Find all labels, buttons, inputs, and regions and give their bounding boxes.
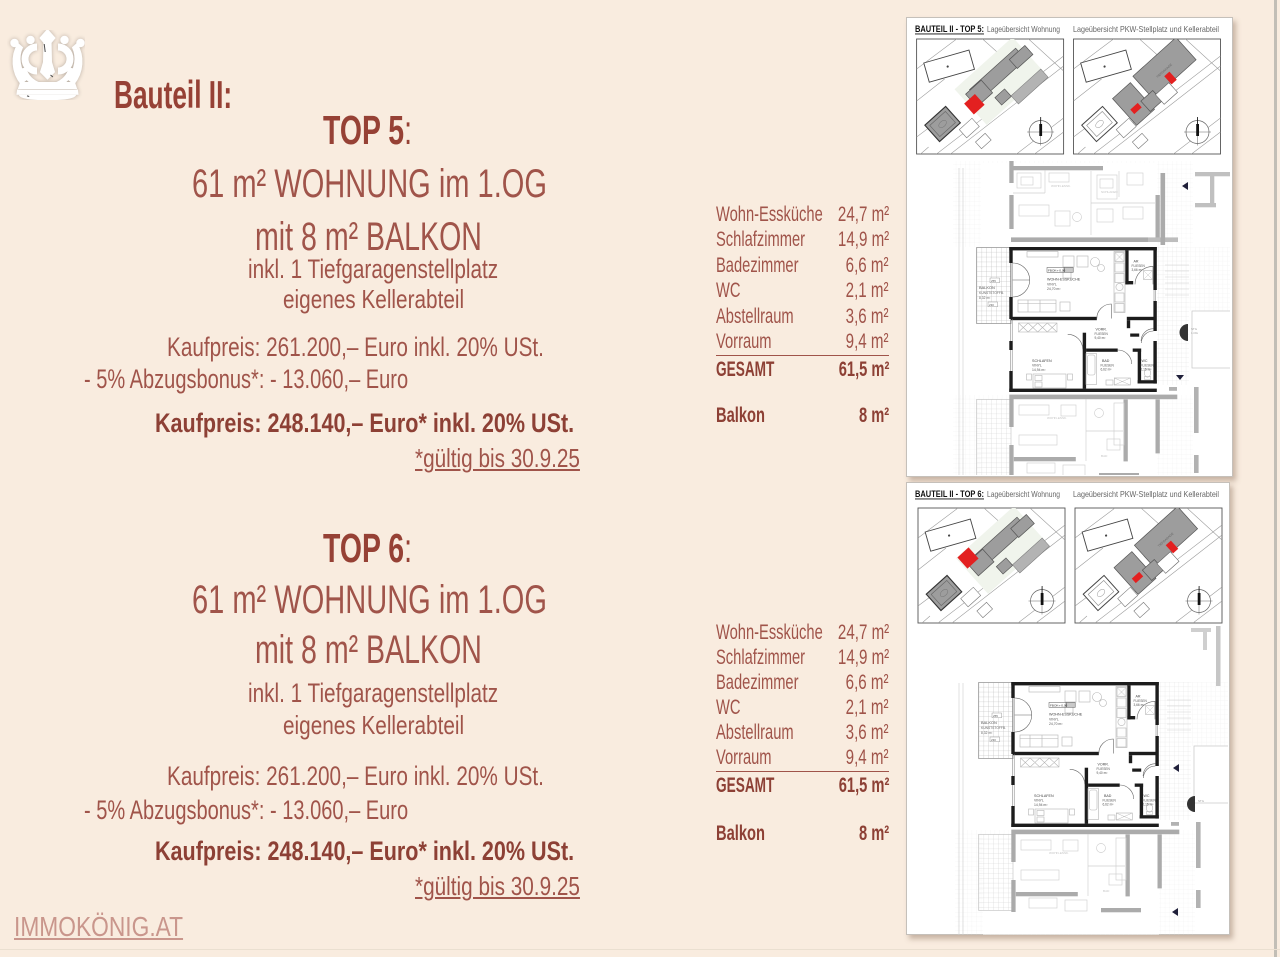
svg-text:1.OG: 1.OG	[1191, 331, 1199, 335]
svg-text:Lageübersicht PKW-Stellplatz u: Lageübersicht PKW-Stellplatz und Kellera…	[1073, 489, 1219, 499]
svg-text:BAUTEIL II - TOP 6:: BAUTEIL II - TOP 6:	[915, 489, 984, 499]
svg-text:STG: STG	[1198, 799, 1205, 803]
svg-text:BAUTEIL II - TOP 5:: BAUTEIL II - TOP 5:	[915, 24, 984, 34]
svg-text:Lageübersicht Wohnung: Lageübersicht Wohnung	[987, 489, 1060, 499]
svg-text:Lageübersicht PKW-Stellplatz u: Lageübersicht PKW-Stellplatz und Kellera…	[1073, 24, 1219, 34]
svg-text:Lageübersicht Wohnung: Lageübersicht Wohnung	[987, 24, 1060, 34]
